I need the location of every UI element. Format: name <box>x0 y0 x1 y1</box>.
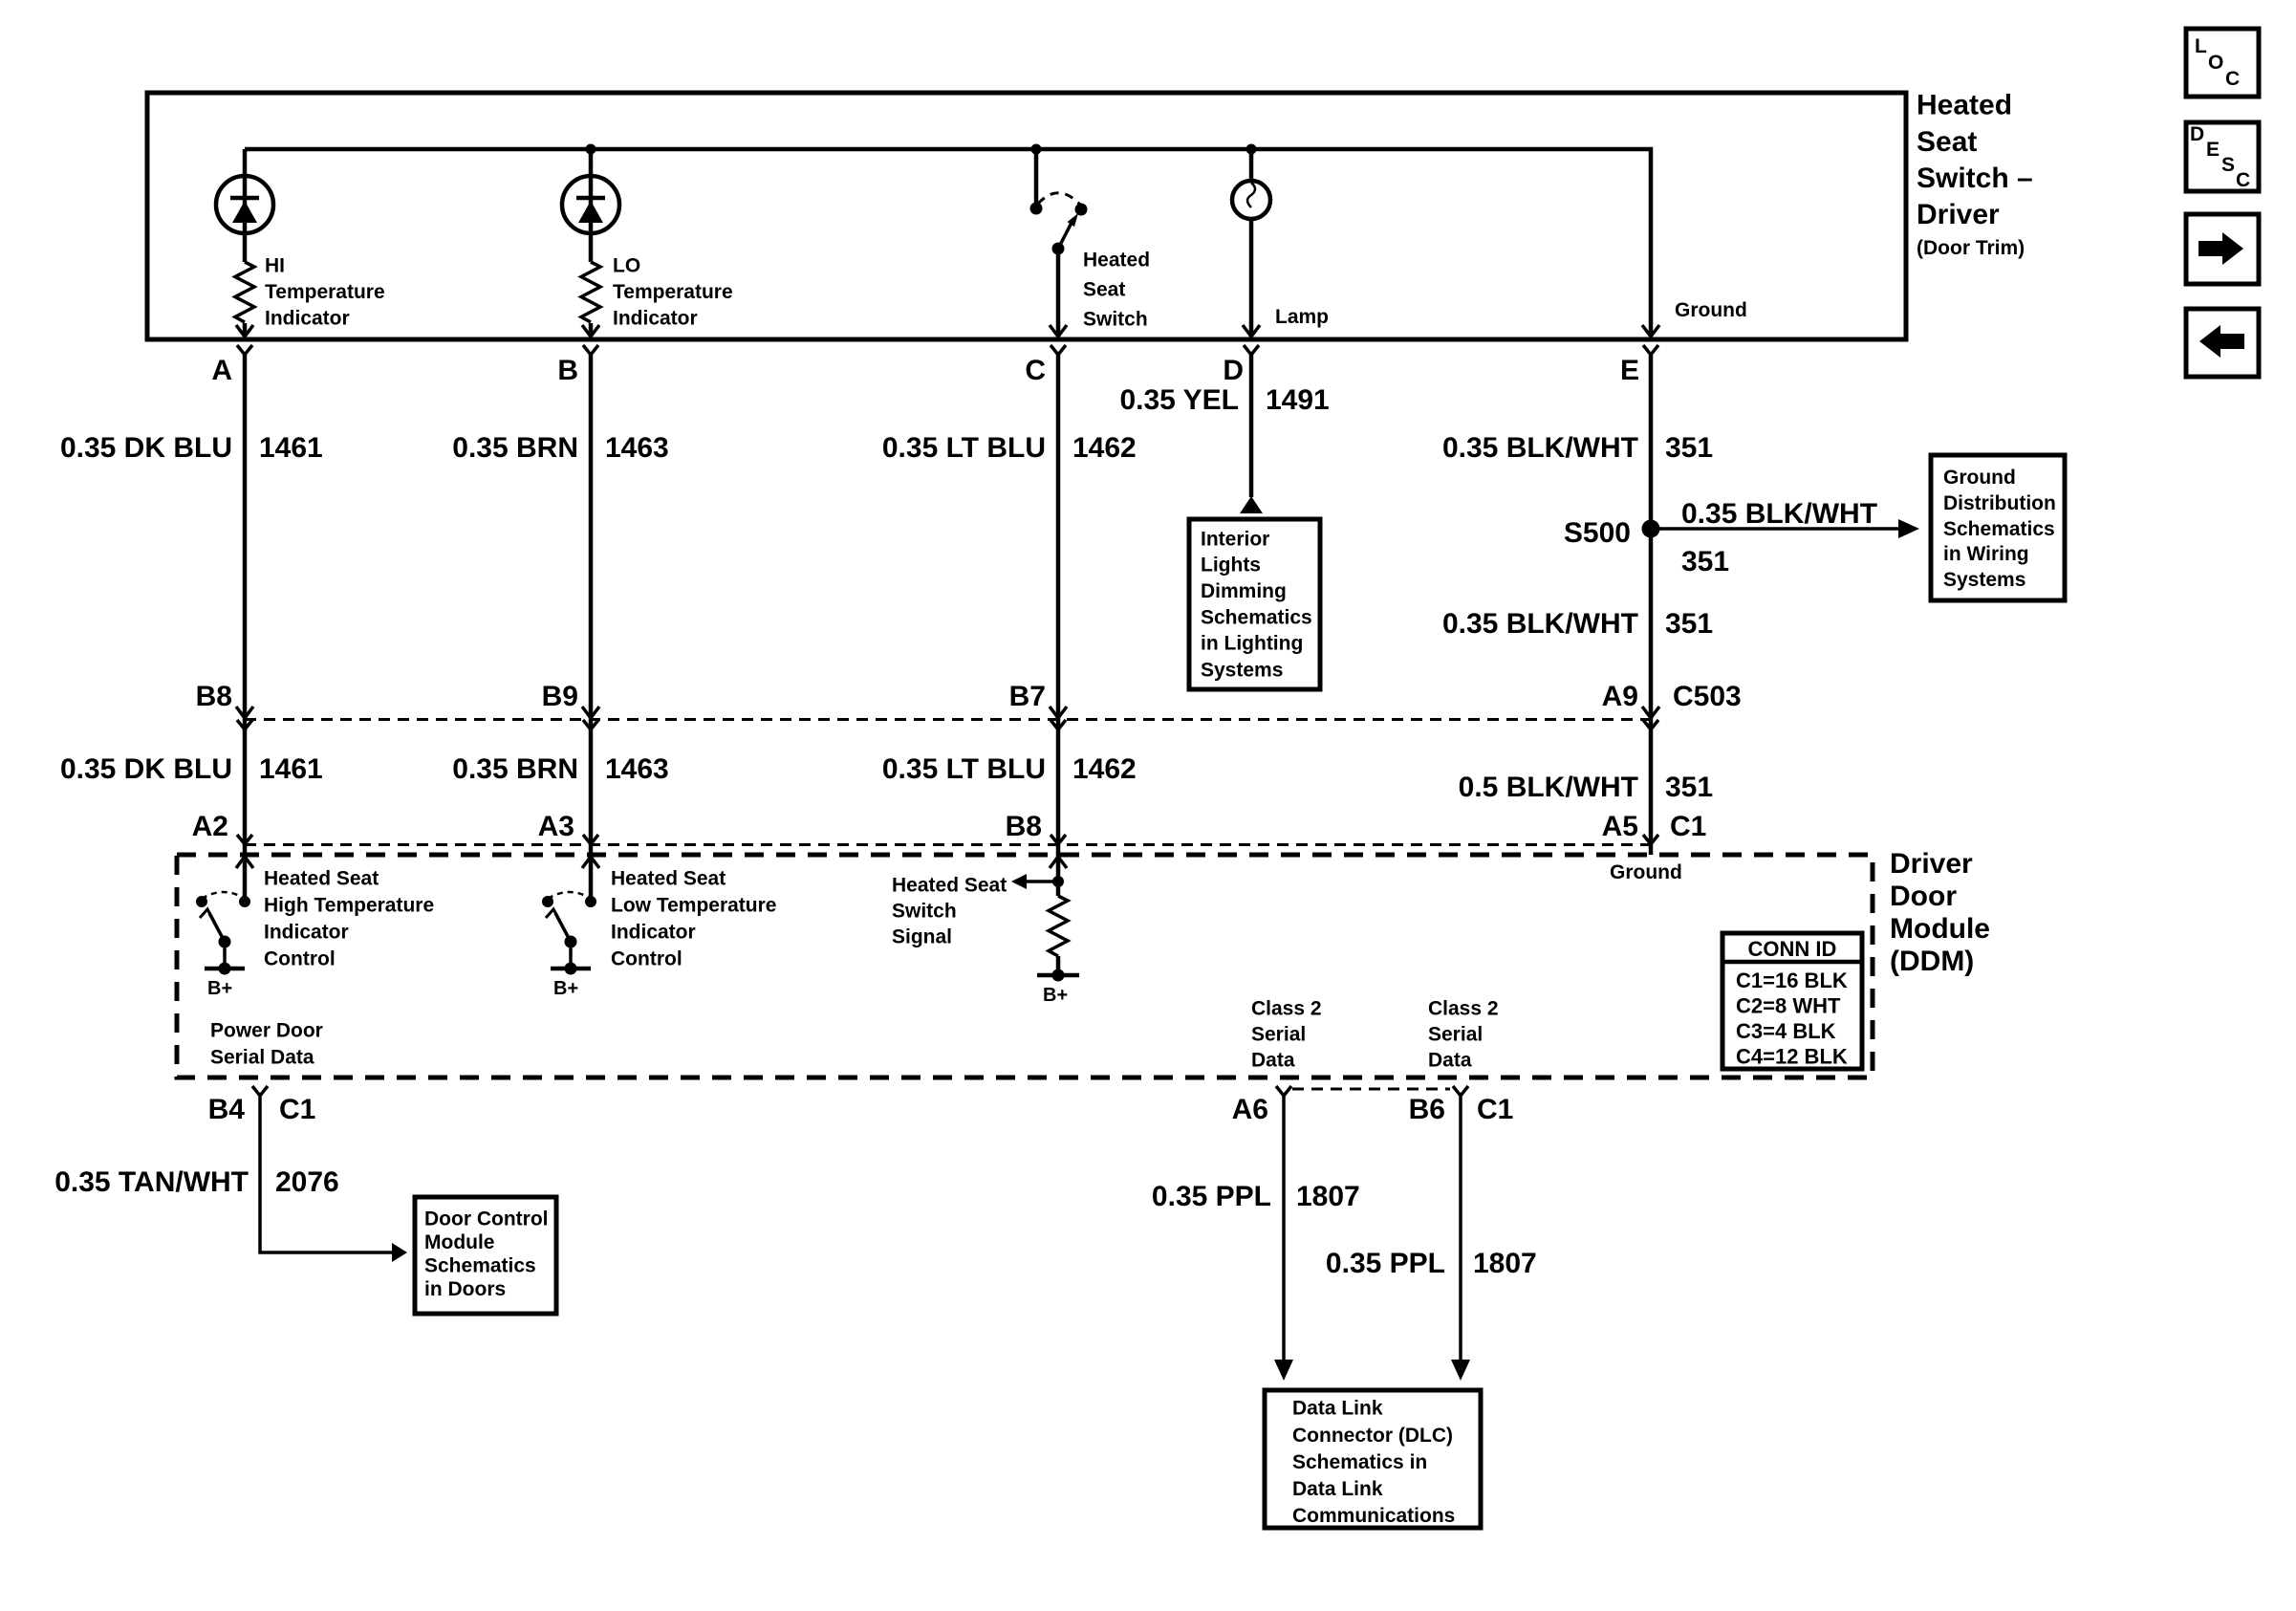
svg-text:Interior: Interior <box>1201 529 1269 551</box>
svg-text:Driver: Driver <box>1917 199 2000 230</box>
svg-text:1807: 1807 <box>1296 1181 1360 1212</box>
svg-text:A3: A3 <box>538 811 574 842</box>
svg-text:Class 2: Class 2 <box>1428 998 1499 1020</box>
svg-text:C: C <box>2236 169 2250 191</box>
svg-text:B8: B8 <box>196 681 232 712</box>
svg-text:LO: LO <box>613 255 640 277</box>
svg-text:A6: A6 <box>1232 1094 1268 1125</box>
svg-text:C4=12 BLK: C4=12 BLK <box>1736 1045 1848 1069</box>
svg-text:C1: C1 <box>1670 811 1706 842</box>
svg-text:0.35 PPL: 0.35 PPL <box>1326 1248 1445 1279</box>
svg-text:(Door Trim): (Door Trim) <box>1917 237 2025 259</box>
svg-text:B6: B6 <box>1409 1094 1445 1125</box>
svg-text:Schematics: Schematics <box>424 1255 536 1277</box>
svg-text:B: B <box>557 355 578 386</box>
svg-text:Driver: Driver <box>1890 848 1973 880</box>
svg-text:1807: 1807 <box>1473 1248 1537 1279</box>
svg-text:351: 351 <box>1665 772 1713 803</box>
svg-text:1462: 1462 <box>1072 432 1137 464</box>
svg-text:0.35 DK BLU: 0.35 DK BLU <box>60 753 232 785</box>
svg-text:Switch: Switch <box>1083 309 1148 331</box>
svg-text:Heated: Heated <box>1917 90 2012 121</box>
svg-text:C1=16 BLK: C1=16 BLK <box>1736 969 1848 992</box>
svg-text:Distribution: Distribution <box>1943 492 2056 514</box>
svg-text:C: C <box>2225 68 2240 90</box>
svg-text:Connector (DLC): Connector (DLC) <box>1292 1425 1453 1447</box>
svg-text:B8: B8 <box>1006 811 1042 842</box>
svg-text:2076: 2076 <box>275 1166 339 1198</box>
svg-text:Class 2: Class 2 <box>1251 998 1322 1020</box>
svg-text:Seat: Seat <box>1917 126 1977 158</box>
svg-text:0.35 BRN: 0.35 BRN <box>452 753 578 785</box>
svg-text:C3=4 BLK: C3=4 BLK <box>1736 1019 1836 1043</box>
svg-text:Temperature: Temperature <box>613 281 733 303</box>
svg-text:1461: 1461 <box>259 432 323 464</box>
svg-text:Data: Data <box>1251 1050 1295 1072</box>
svg-text:D: D <box>2190 123 2204 145</box>
svg-text:0.35 TAN/WHT: 0.35 TAN/WHT <box>54 1166 249 1198</box>
svg-text:C: C <box>1025 355 1046 386</box>
svg-text:0.35 YEL: 0.35 YEL <box>1119 384 1239 416</box>
svg-text:Low Temperature: Low Temperature <box>611 895 776 917</box>
svg-text:Seat: Seat <box>1083 279 1125 301</box>
svg-text:0.35 BLK/WHT: 0.35 BLK/WHT <box>1681 498 1877 530</box>
svg-text:Door Control: Door Control <box>424 1208 548 1230</box>
svg-text:B9: B9 <box>542 681 578 712</box>
svg-text:Lamp: Lamp <box>1275 306 1329 328</box>
svg-text:CONN ID: CONN ID <box>1748 937 1837 961</box>
svg-text:Indicator: Indicator <box>264 922 349 944</box>
svg-text:Switch –: Switch – <box>1917 163 2033 194</box>
svg-text:Indicator: Indicator <box>265 308 350 330</box>
svg-text:Module: Module <box>424 1231 495 1253</box>
svg-text:0.35 BRN: 0.35 BRN <box>452 432 578 464</box>
svg-text:A9: A9 <box>1602 681 1638 712</box>
svg-text:0.5 BLK/WHT: 0.5 BLK/WHT <box>1459 772 1638 803</box>
svg-text:0.35 DK BLU: 0.35 DK BLU <box>60 432 232 464</box>
svg-text:C1: C1 <box>1477 1094 1513 1125</box>
svg-text:Data Link: Data Link <box>1292 1398 1383 1420</box>
svg-text:E: E <box>2206 139 2220 161</box>
svg-text:in Doors: in Doors <box>424 1278 506 1300</box>
svg-text:C2=8 WHT: C2=8 WHT <box>1736 994 1841 1018</box>
svg-text:Systems: Systems <box>1201 660 1283 682</box>
svg-text:Dimming: Dimming <box>1201 580 1287 602</box>
svg-text:C1: C1 <box>279 1094 315 1125</box>
svg-text:Serial: Serial <box>1251 1024 1306 1046</box>
svg-text:S: S <box>2221 154 2235 176</box>
svg-text:Heated: Heated <box>1083 250 1150 272</box>
svg-text:D: D <box>1223 355 1244 386</box>
svg-text:O: O <box>2208 52 2223 74</box>
svg-text:HI: HI <box>265 255 285 277</box>
svg-text:Data Link: Data Link <box>1292 1478 1383 1500</box>
svg-text:Signal: Signal <box>892 926 952 948</box>
svg-text:A2: A2 <box>192 811 228 842</box>
svg-text:Control: Control <box>264 948 336 970</box>
svg-text:in Lighting: in Lighting <box>1201 633 1303 655</box>
svg-text:B+: B+ <box>1043 985 1068 1006</box>
svg-text:A: A <box>211 355 232 386</box>
svg-text:B4: B4 <box>208 1094 246 1125</box>
svg-text:Switch: Switch <box>892 901 957 923</box>
svg-text:Ground: Ground <box>1675 299 1747 321</box>
svg-text:Ground: Ground <box>1943 467 2016 489</box>
svg-text:Door: Door <box>1890 881 1957 912</box>
svg-text:B+: B+ <box>553 978 578 999</box>
svg-text:C503: C503 <box>1673 681 1742 712</box>
svg-text:(DDM): (DDM) <box>1890 946 1974 977</box>
svg-text:Temperature: Temperature <box>265 281 385 303</box>
svg-text:Module: Module <box>1890 913 1990 945</box>
svg-text:Schematics: Schematics <box>1201 607 1312 629</box>
svg-text:351: 351 <box>1665 432 1713 464</box>
svg-text:Indicator: Indicator <box>611 922 696 944</box>
svg-text:S500: S500 <box>1564 517 1631 549</box>
svg-text:351: 351 <box>1681 546 1729 577</box>
svg-text:1463: 1463 <box>605 432 669 464</box>
svg-text:0.35 BLK/WHT: 0.35 BLK/WHT <box>1442 608 1638 640</box>
svg-text:Systems: Systems <box>1943 569 2025 591</box>
svg-text:A5: A5 <box>1602 811 1638 842</box>
svg-text:0.35 LT BLU: 0.35 LT BLU <box>882 432 1046 464</box>
svg-text:Schematics: Schematics <box>1943 518 2055 540</box>
svg-text:E: E <box>1620 355 1639 386</box>
svg-text:0.35 LT BLU: 0.35 LT BLU <box>882 753 1046 785</box>
svg-text:Heated Seat: Heated Seat <box>611 868 726 890</box>
svg-text:Lights: Lights <box>1201 555 1261 577</box>
svg-text:B+: B+ <box>207 978 232 999</box>
svg-text:Heated Seat: Heated Seat <box>892 875 1007 897</box>
svg-text:Serial: Serial <box>1428 1024 1483 1046</box>
svg-text:1463: 1463 <box>605 753 669 785</box>
svg-text:Data: Data <box>1428 1050 1472 1072</box>
svg-text:0.35 BLK/WHT: 0.35 BLK/WHT <box>1442 432 1638 464</box>
svg-text:L: L <box>2195 35 2207 57</box>
svg-text:1461: 1461 <box>259 753 323 785</box>
svg-text:351: 351 <box>1665 608 1713 640</box>
svg-text:High Temperature: High Temperature <box>264 895 434 917</box>
svg-text:Control: Control <box>611 948 682 970</box>
svg-text:Indicator: Indicator <box>613 308 698 330</box>
svg-text:in Wiring: in Wiring <box>1943 543 2029 565</box>
svg-text:1491: 1491 <box>1266 384 1330 416</box>
svg-text:0.35 PPL: 0.35 PPL <box>1152 1181 1271 1212</box>
svg-text:Schematics in: Schematics in <box>1292 1451 1427 1473</box>
svg-text:Communications: Communications <box>1292 1505 1455 1527</box>
svg-text:Ground: Ground <box>1610 861 1682 883</box>
svg-text:B7: B7 <box>1009 681 1046 712</box>
svg-text:1462: 1462 <box>1072 753 1137 785</box>
svg-text:Serial Data: Serial Data <box>210 1047 314 1069</box>
svg-text:Heated Seat: Heated Seat <box>264 868 379 890</box>
svg-text:Power Door: Power Door <box>210 1020 323 1042</box>
